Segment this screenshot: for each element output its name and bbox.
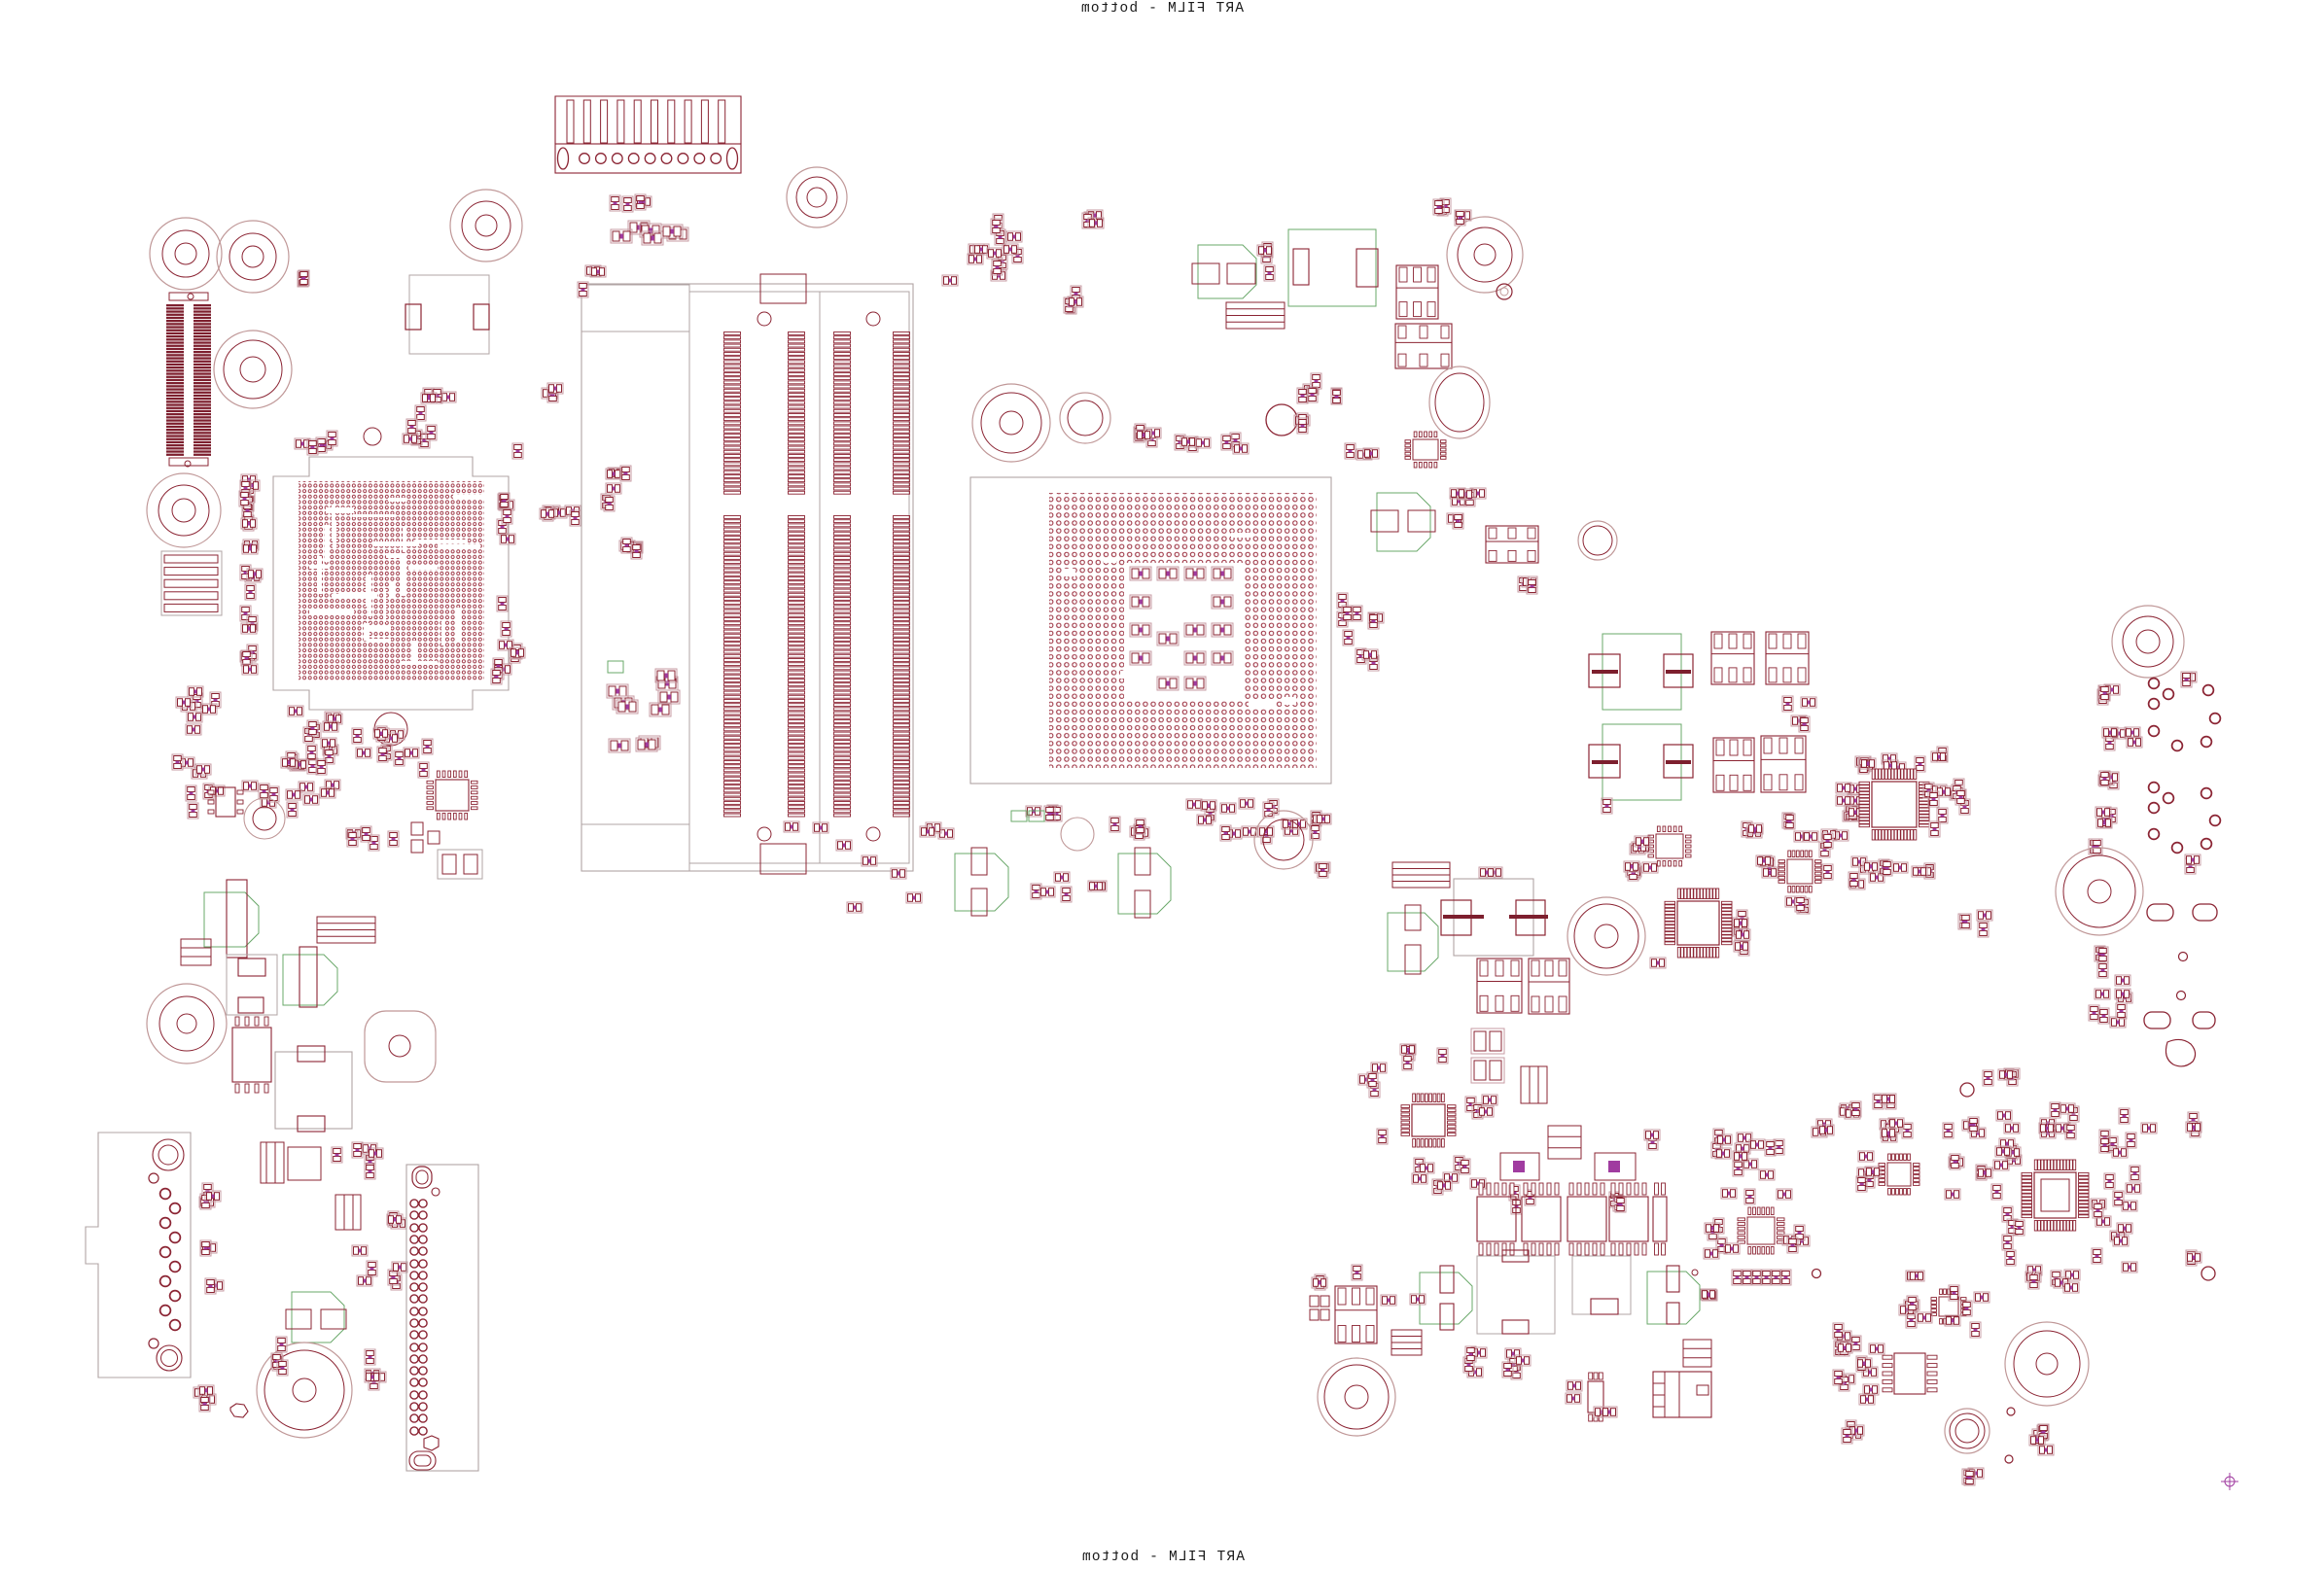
svg-text:ART FILM - bottom: ART FILM - bottom [1081, 1550, 1245, 1565]
svg-text:ART FILM - bottom: ART FILM - bottom [1080, 1, 1244, 17]
